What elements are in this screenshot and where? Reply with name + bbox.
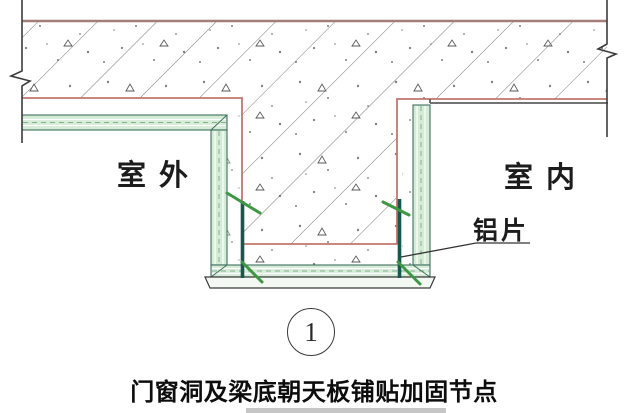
cropped-element-bottom bbox=[246, 408, 446, 413]
sill-board bbox=[205, 277, 435, 288]
construction-detail-drawing: 室外 室内 铝片 1 门窗洞及梁底朝天板铺贴加固节点 bbox=[0, 0, 640, 413]
label-outdoor: 室外 bbox=[117, 152, 201, 194]
label-indoor: 室内 bbox=[504, 154, 588, 196]
drawing-caption: 门窗洞及梁底朝天板铺贴加固节点 bbox=[0, 372, 628, 407]
detail-number-badge: 1 bbox=[287, 308, 335, 356]
label-aluminum-sheet: 铝片 bbox=[473, 211, 529, 247]
detail-number: 1 bbox=[304, 317, 318, 348]
